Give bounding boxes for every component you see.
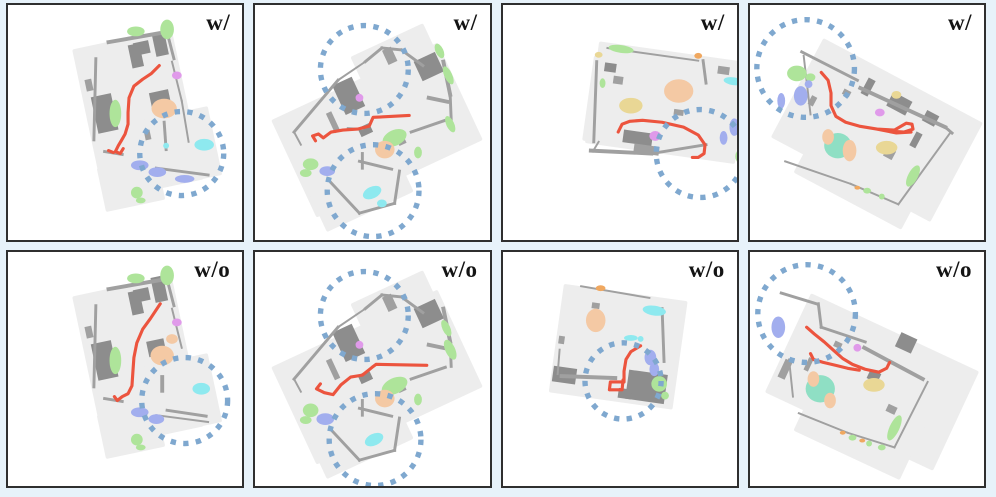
semantic-patch-cyan [194,139,214,151]
semantic-patch-peach [822,129,834,145]
map-canvas [8,5,242,240]
panel-label: w/ [701,10,725,35]
map-panel-3: w/ [501,3,739,242]
semantic-patch-orchid [853,343,861,351]
semantic-patch-peri [149,414,165,424]
wall-segment [382,48,402,50]
semantic-patch-green [878,444,886,450]
semantic-patch-green [787,66,807,82]
semantic-patch-peri [719,131,727,145]
wall-segment [94,59,96,140]
semantic-patch-orchid [172,71,182,79]
semantic-patch-peach [664,79,693,102]
map-panel-8: w/o [748,250,986,489]
wall-block [591,302,600,309]
semantic-patch-green [131,187,143,199]
map-panel-4: w/ [748,3,986,242]
semantic-patch-peach [585,308,605,331]
semantic-patch-orchid [875,109,885,117]
semantic-patch-peri [777,93,785,109]
semantic-patch-green [599,78,605,88]
wall-segment [382,294,402,296]
panel-label: w/ [454,10,478,35]
panel-label: w/ [948,10,972,35]
semantic-patch-peach [824,392,836,408]
semantic-patch-peri [149,167,167,177]
semantic-patch-green [661,391,669,399]
semantic-patch-peri [649,362,659,376]
wall-segment [450,96,451,119]
map-panel-2: w/ [253,3,491,242]
semantic-patch-green [863,188,871,194]
map-canvas [503,5,737,240]
wall-block [603,62,616,72]
semantic-patch-green [110,100,122,127]
semantic-patch-khaki [619,98,642,114]
semantic-patch-green [136,197,146,203]
semantic-patch-green [131,433,143,445]
map-canvas [255,252,489,487]
map-canvas [750,252,984,487]
panel-label: w/o [442,257,478,282]
wall-block [558,335,565,344]
wall-segment [94,305,96,386]
semantic-patch-orange [595,285,605,291]
panel-label: w/o [689,257,725,282]
panel-label: w/o [936,257,972,282]
map-canvas [8,252,242,487]
semantic-patch-cyan [192,382,210,394]
semantic-patch-green [879,194,885,200]
semantic-patch-green [805,73,815,81]
semantic-patch-peri [771,316,785,337]
map-panel-1: w/ [6,3,244,242]
semantic-patch-green [414,393,422,405]
semantic-patch-khaki [594,52,602,58]
semantic-patch-green [160,265,174,285]
wall-segment [662,308,664,361]
semantic-patch-orchid [356,94,364,102]
semantic-patch-peri [794,86,808,106]
semantic-patch-green [848,434,856,440]
map-panel-7: w/o [501,250,739,489]
semantic-patch-cyan [377,199,387,207]
map-panel-6: w/o [253,250,491,489]
semantic-patch-green [160,20,174,40]
semantic-patch-green [866,440,872,446]
semantic-patch-green [127,26,145,36]
semantic-patch-peach [807,371,819,387]
semantic-patch-peri [804,80,812,88]
semantic-patch-green [300,169,312,177]
semantic-patch-green [136,444,146,450]
map-panel-5: w/o [6,250,244,489]
semantic-patch-orange [840,430,846,434]
semantic-patch-green [414,147,422,159]
map-canvas [503,252,737,487]
map-canvas [750,5,984,240]
semantic-patch-orchid [172,318,182,326]
semantic-patch-peri [175,175,195,183]
semantic-patch-green [300,416,312,424]
semantic-patch-peri [317,413,335,425]
map-canvas [255,5,489,240]
semantic-patch-peach [842,140,856,161]
semantic-patch-cyan [163,143,169,149]
semantic-patch-orchid [356,340,364,348]
semantic-patch-cyan [624,335,638,341]
semantic-patch-orange [854,186,860,190]
semantic-patch-khaki [891,91,901,99]
semantic-patch-khaki [876,141,897,155]
semantic-patch-khaki [863,378,884,392]
wall-block [612,76,623,85]
semantic-patch-green [303,158,319,170]
semantic-patch-green [110,346,122,373]
semantic-patch-orange [859,438,865,442]
wall-segment [561,376,615,378]
wall-block [717,66,730,75]
semantic-patch-green [127,273,145,283]
semantic-patch-orange [694,53,702,59]
panel-label: w/o [194,257,230,282]
trajectory-path [109,151,114,153]
semantic-patch-cyan [637,336,643,342]
semantic-patch-green [303,403,319,417]
panel-label: w/ [206,10,230,35]
semantic-patch-peach [166,334,178,344]
ablation-figure: w/ w/ w/ w/ w/o w/o w/o w/o [0,0,996,497]
